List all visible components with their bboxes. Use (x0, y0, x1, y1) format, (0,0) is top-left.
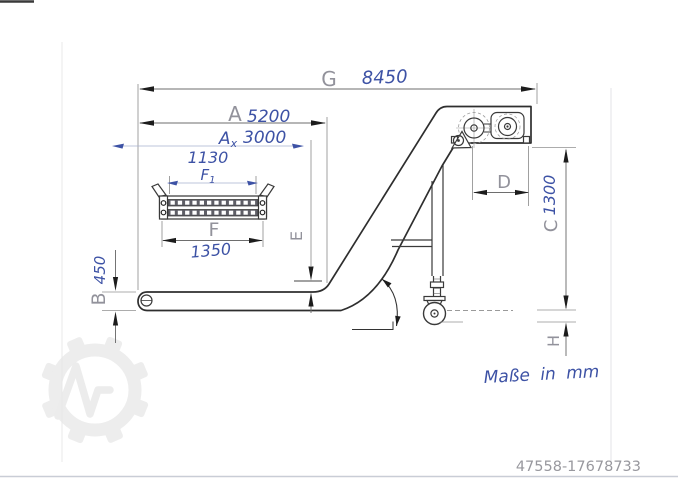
dim-B-value: 450 (91, 256, 109, 285)
dim-C-letter: C (541, 220, 562, 233)
dim-Ax-letter: Ax (218, 129, 238, 150)
scanned-technical-drawing: G 8450 A 5200 Ax 3000 1130 F1 F 1350 (0, 0, 678, 480)
dim-G-letter: G (321, 67, 337, 91)
dim-H-letter: H (544, 335, 563, 347)
dim-A-value: 5200 (247, 107, 290, 127)
caster-wheel (424, 297, 446, 325)
dimension-C: 1300 C (540, 149, 569, 310)
support-leg (391, 165, 446, 325)
dim-A-letter: A (228, 102, 242, 126)
dim-B-letter: B (88, 292, 110, 305)
units-note: Maße in mm (483, 362, 600, 388)
dim-Ax-value: 3000 (243, 128, 286, 148)
dim-F1-value: 1130 (188, 148, 229, 167)
leveling-spindle (431, 276, 444, 297)
watermark-gear-icon (41, 336, 149, 444)
dim-E-letter: E (287, 231, 306, 241)
tail-roller (141, 295, 153, 306)
dim-C-value: 1300 (540, 175, 559, 216)
dimension-F: F 1350 (162, 219, 263, 262)
dimension-G: G 8450 (139, 66, 536, 91)
dim-F1-letter: F1 (200, 166, 215, 186)
listing-id: 47558-17678733 (516, 459, 641, 475)
dimension-D: D (473, 172, 529, 195)
dimension-H: H (544, 323, 569, 357)
dimension-F1: 1130 F1 (167, 148, 258, 186)
dim-F-letter: F (209, 219, 220, 241)
dim-G-value: 8450 (361, 66, 408, 89)
scan-artifacts (0, 2, 678, 477)
conveyor-dimension-drawing: G 8450 A 5200 Ax 3000 1130 F1 F 1350 (0, 0, 678, 480)
dim-F-value: 1350 (190, 239, 232, 261)
dimension-E: E (287, 140, 314, 313)
dimension-B: 450 B (88, 250, 118, 343)
dimension-Ax: Ax 3000 (112, 128, 304, 150)
dim-D-letter: D (497, 172, 511, 193)
dimension-A: A 5200 (139, 102, 326, 127)
